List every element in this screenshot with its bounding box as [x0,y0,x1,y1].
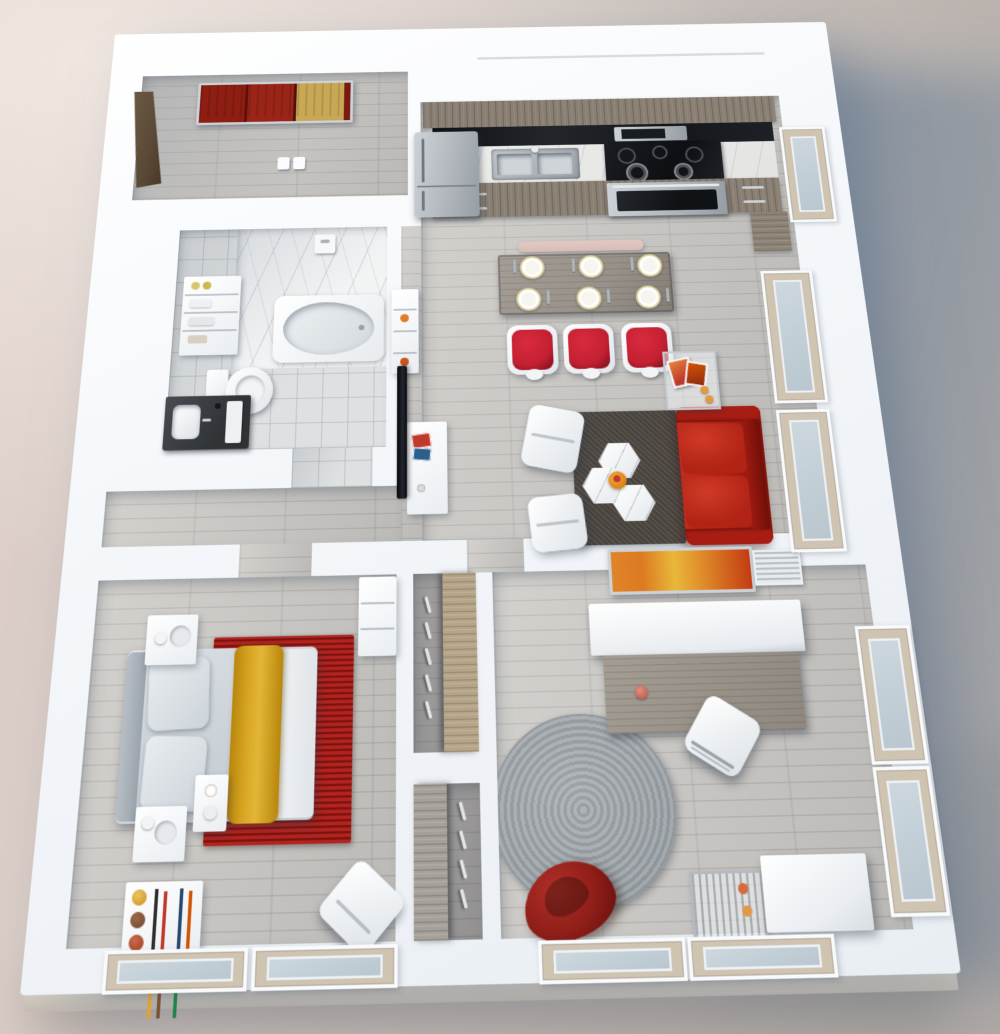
render-backdrop [0,0,1000,1034]
cup [417,484,425,492]
shower-handle [320,240,330,244]
lounge-chair [520,403,586,474]
towel [190,299,212,307]
fridge-door-seam [417,185,476,188]
book-spine [186,891,193,949]
drawer-seam [360,627,394,630]
den-bottom-window [538,937,688,984]
vanity-sink [171,405,201,440]
bathroom-doorway-tile [291,447,373,488]
cart-bottle [742,905,753,917]
bedroom-window [251,944,398,991]
shelf-divider [394,309,417,311]
bathroom-shelves [179,276,242,356]
metal-cart [689,870,770,939]
decor-soap [203,282,212,290]
book-row [151,889,176,953]
sofa-armrest [685,527,774,545]
dresser [358,576,397,656]
cup [141,816,154,829]
pantry-cabinet [750,211,792,251]
shelf-unit [391,289,418,374]
sheet-fold [278,649,318,819]
book-spine [161,891,168,949]
shelf-divider [393,352,416,354]
burner [652,145,669,159]
faucet [531,146,539,153]
decor-soap [191,282,200,290]
media-console [407,421,448,514]
window-glass [703,944,823,970]
cutlery [513,259,516,273]
entry-artwork-texture [199,83,345,118]
sofa-seat-cushion [679,423,748,474]
bedroom-window [102,947,248,994]
window-glass [553,948,672,974]
den-bottom-window [687,934,838,981]
refrigerator [414,131,480,217]
book-spine [177,888,184,949]
shelf-divider [393,330,416,332]
microwave [614,126,688,142]
vanity-towel [225,401,243,443]
cup [203,805,217,820]
den-cabinet [760,853,875,933]
fridge-handle [422,191,425,211]
drawer-seam [361,602,395,605]
bathtub [272,294,384,363]
glass-cup [700,386,709,394]
chair-cushion [568,328,611,369]
magazine [412,447,431,461]
desk-hutch [588,599,805,655]
window-glass [773,280,816,392]
light-switch [293,157,305,169]
book-row [176,888,198,951]
cart-bottle [738,883,749,894]
tray [169,625,192,647]
decor-bowl [400,358,409,366]
yellow-throw [226,645,283,824]
decor-bowl [400,314,409,322]
sofa-seat-cushion [683,476,753,528]
microwave-window [621,129,665,139]
light-switch [277,157,289,169]
chair-seam [536,519,579,527]
sink-basin [537,153,573,175]
lounge-chair [527,493,589,553]
drawer-handle [743,200,766,203]
coffee-tray-table [193,774,229,832]
kitchen-sink [491,148,580,181]
vase [131,889,147,906]
window-glass [868,639,914,750]
shower-valve [314,234,335,253]
pillow [147,656,210,731]
drawer-handle [742,186,764,189]
shelf-divider [185,293,239,296]
bedroom-doorway-floor [238,543,312,578]
wall-tv [397,366,407,499]
window-glass [887,781,936,902]
towel [189,317,215,326]
burner-coil [673,163,694,181]
den-artwork [607,546,756,595]
tray [154,820,178,845]
hall-floor [101,486,400,548]
desk-cup [635,685,649,699]
window-glass [266,954,383,980]
oven-window [616,189,718,211]
window-glass [788,420,833,541]
burner [685,146,705,163]
nightstand [132,806,187,863]
cup [154,632,166,644]
fruit [613,475,621,482]
vanity-bottle [215,403,221,409]
closet-sliding-panel [414,784,449,941]
shelf-divider [184,311,238,314]
glass-side-table [662,351,721,411]
vanity-faucet [202,419,211,422]
book-spine [151,889,158,950]
shelf-divider [182,329,236,332]
magazine [684,361,708,388]
dining-chair [507,325,559,375]
sink-basin [497,154,533,176]
chair-seam [335,899,371,935]
oven-handle [612,184,719,188]
oven [607,181,728,217]
cooktop [604,140,725,183]
floor-plan-model [18,12,964,1016]
cutlery [547,290,550,304]
vase [130,912,146,929]
dining-chair [562,324,615,374]
burner [617,148,636,165]
chair-cushion [511,329,553,370]
cup [204,784,217,797]
fridge-handle [422,139,425,183]
towel [187,335,207,344]
vanity [162,395,251,450]
den-doorway-floor [467,539,525,573]
vent-grille [752,549,803,585]
glass-cup [705,395,714,403]
window-glass [790,136,826,212]
red-sofa [675,406,774,546]
nightstand [144,614,198,665]
closet-sliding-panel [442,573,479,753]
window-glass [117,958,233,984]
chair-seam [531,433,575,444]
